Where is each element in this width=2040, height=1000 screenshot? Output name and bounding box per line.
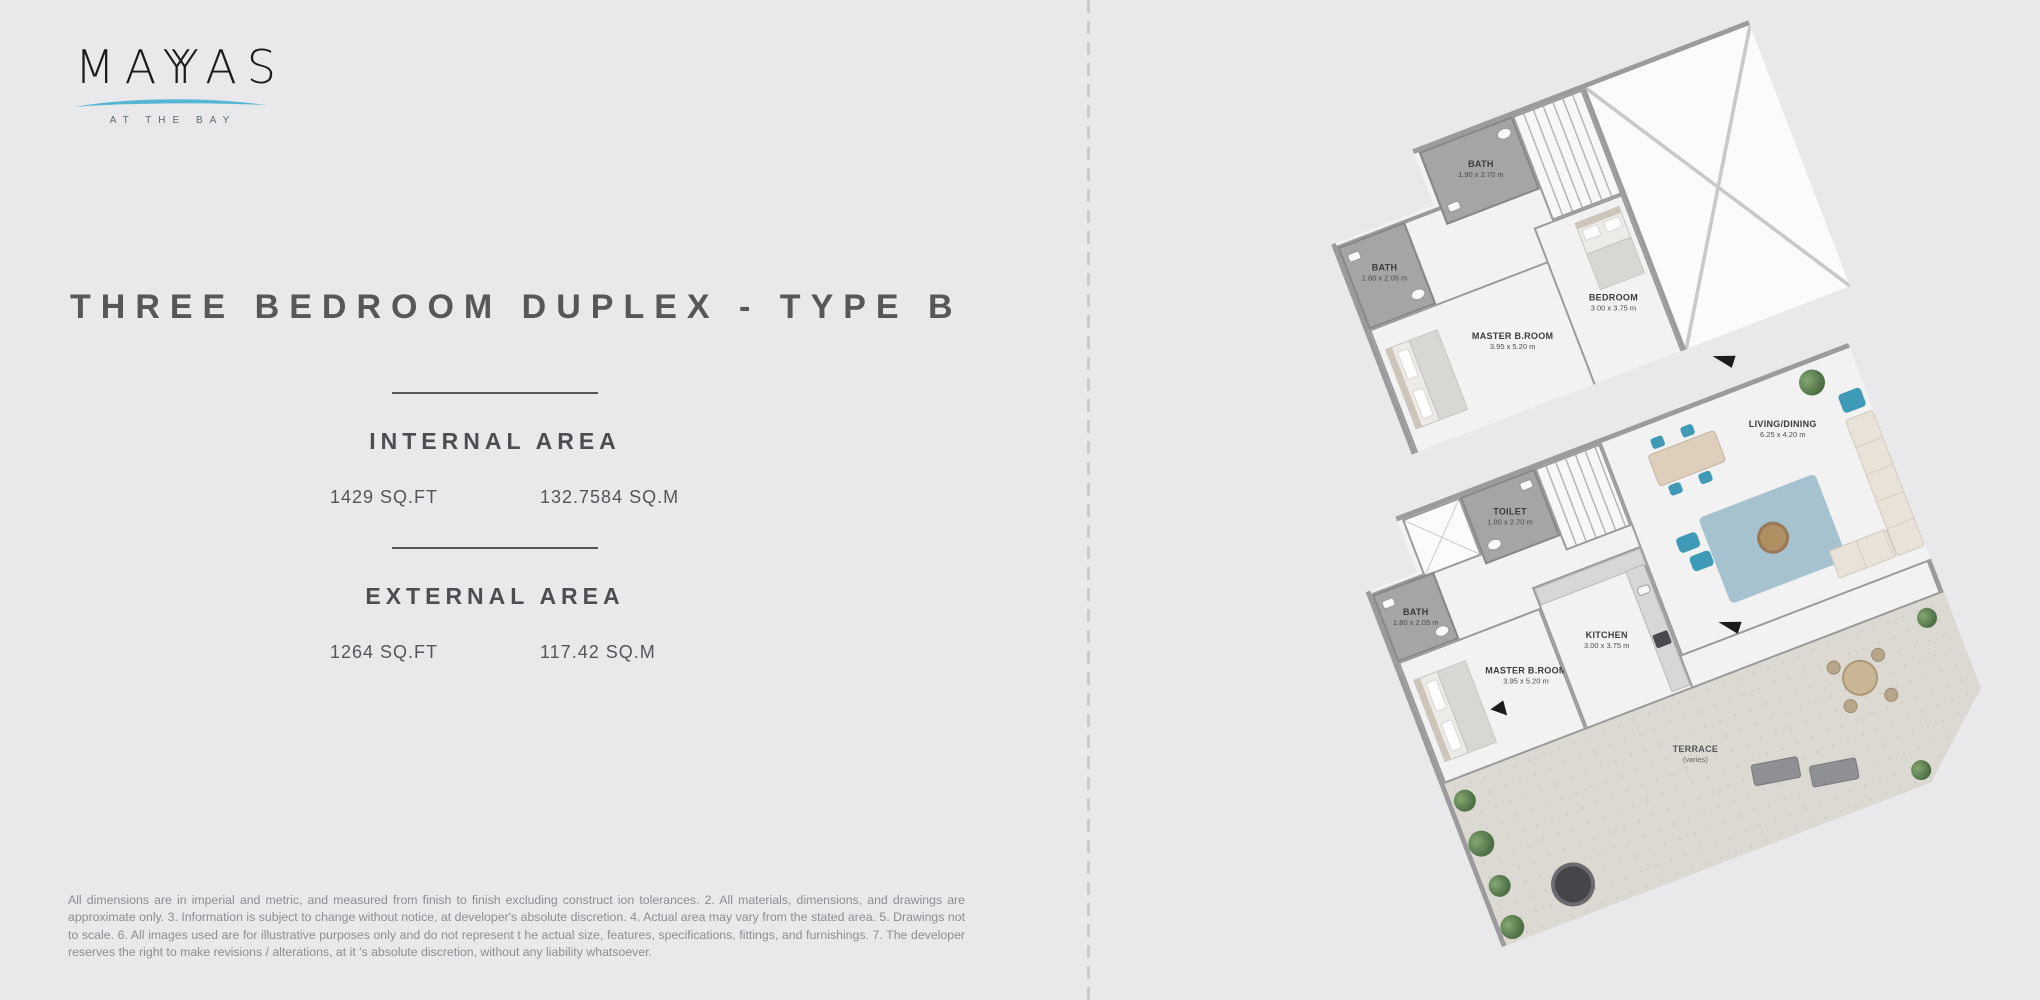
- room-label: BEDROOM 3.00 x 3.75 m: [1567, 292, 1659, 312]
- room-label: TERRACE (varies): [1640, 744, 1750, 764]
- logo-letters-ma: MA: [75, 40, 163, 94]
- external-area-sqft: 1264 SQ.FT: [330, 642, 438, 663]
- logo-letters-as: AS: [205, 40, 286, 94]
- room-label: MASTER B.ROOM 3.95 x 5.20 m: [1453, 331, 1573, 351]
- internal-area-sqm: 132.7584 SQ.M: [540, 487, 679, 508]
- sink-icon: [1519, 479, 1534, 492]
- room-label: TOILET 1.00 x 2.70 m: [1469, 507, 1551, 527]
- dashed-page-divider: [1087, 0, 1090, 1000]
- external-area-sqm: 117.42 SQ.M: [540, 642, 656, 663]
- chair-icon: [1650, 435, 1666, 450]
- plant-icon: [1465, 827, 1499, 861]
- logo-swoosh-icon: [72, 96, 268, 110]
- armchair-icon: [1837, 387, 1867, 414]
- chair-icon: [1680, 423, 1696, 438]
- direction-arrow-icon: [1710, 349, 1736, 370]
- sink-icon: [1446, 200, 1461, 213]
- lounge-chair-icon: [1809, 757, 1860, 788]
- outdoor-chair-icon: [1842, 697, 1860, 715]
- chair-icon: [1668, 481, 1684, 496]
- outdoor-chair-icon: [1825, 659, 1843, 677]
- round-lounge-icon: [1545, 856, 1602, 913]
- pouf-icon: [1675, 531, 1701, 554]
- toilet-icon: [1409, 286, 1427, 302]
- room-label: LIVING/DINING 6.25 x 4.20 m: [1728, 419, 1838, 439]
- toilet-icon: [1486, 537, 1504, 553]
- outdoor-chair-icon: [1869, 646, 1887, 664]
- page-title: THREE BEDROOM DUPLEX - TYPE B: [70, 288, 963, 327]
- outdoor-chair-icon: [1882, 686, 1900, 704]
- sink-icon: [1347, 250, 1362, 263]
- divider-rule: [392, 392, 598, 394]
- plant-icon: [1497, 912, 1528, 943]
- plant-icon: [1451, 786, 1479, 814]
- plant-icon: [1485, 872, 1513, 900]
- brand-logo: MAYYAS AT THE BAY: [75, 40, 275, 126]
- chair-icon: [1697, 470, 1713, 485]
- room-label: BATH 1.90 x 2.70 m: [1441, 159, 1521, 179]
- plant-icon: [1914, 605, 1940, 631]
- internal-area-sqft: 1429 SQ.FT: [330, 487, 438, 508]
- disclaimer-text: All dimensions are in imperial and metri…: [68, 892, 965, 962]
- brand-tagline: AT THE BAY: [75, 115, 271, 126]
- room-label: BATH 1.80 x 2.05 m: [1375, 607, 1457, 627]
- external-area-heading: EXTERNAL AREA: [290, 583, 700, 610]
- toilet-icon: [1495, 126, 1513, 142]
- brand-logo-wordmark: MAYYAS: [75, 40, 275, 94]
- internal-area-heading: INTERNAL AREA: [290, 428, 700, 455]
- info-panel: MAYYAS AT THE BAY THREE BEDROOM DUPLEX -…: [0, 0, 1087, 1000]
- divider-rule: [392, 547, 598, 549]
- plant-icon: [1795, 366, 1829, 400]
- logo-letter-y2: Y: [171, 40, 206, 94]
- room-label: KITCHEN 3.00 x 3.75 m: [1562, 630, 1652, 650]
- plant-icon: [1908, 757, 1934, 783]
- lounge-chair-icon: [1750, 756, 1801, 787]
- room-label: BATH 1.80 x 2.05 m: [1344, 262, 1426, 282]
